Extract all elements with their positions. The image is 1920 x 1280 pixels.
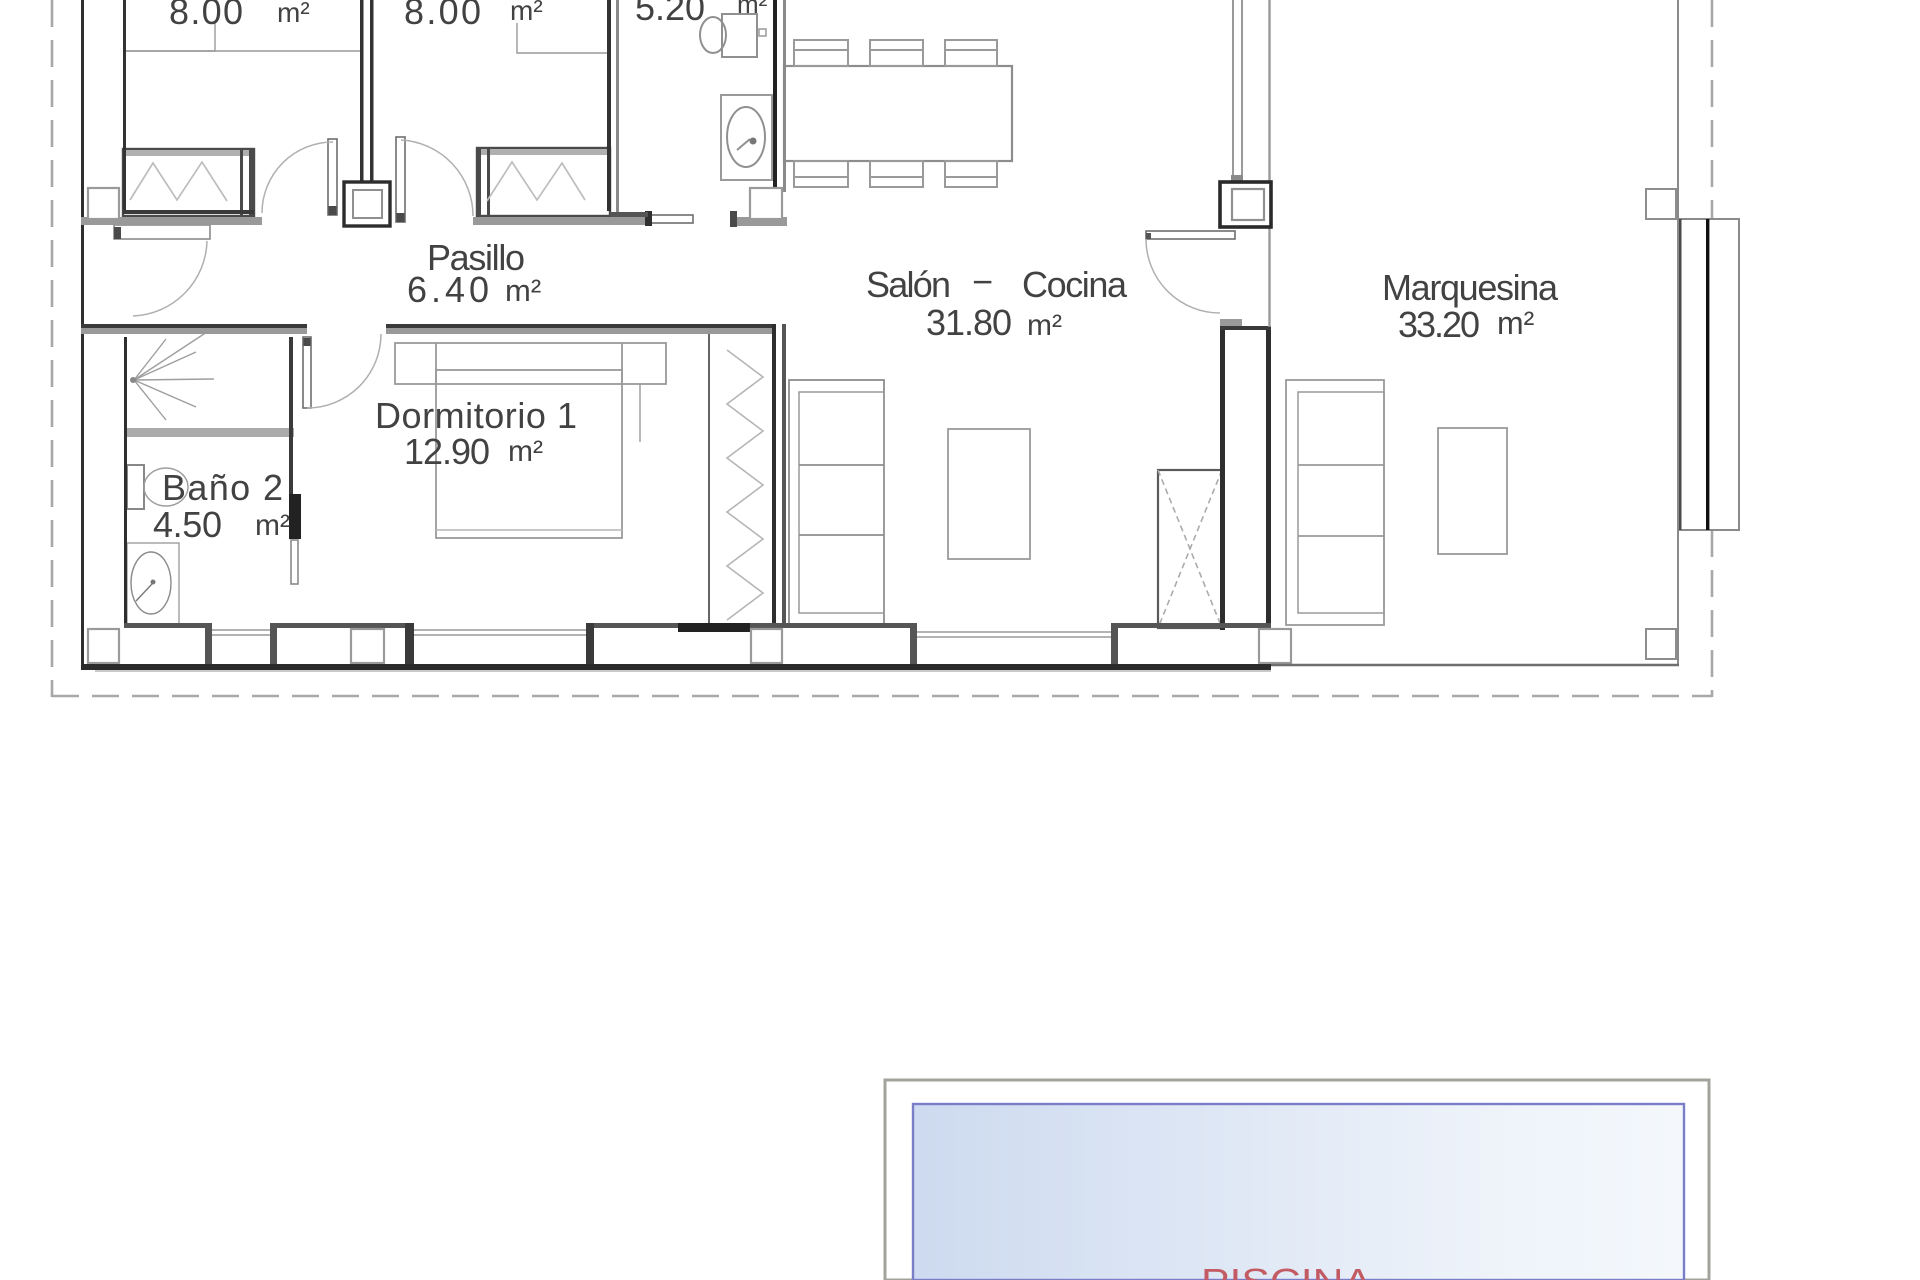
svg-text:m²: m² bbox=[737, 0, 768, 19]
svg-text:Salón: Salón bbox=[866, 264, 951, 305]
svg-text:8.00: 8.00 bbox=[404, 0, 481, 32]
svg-text:m²: m² bbox=[277, 0, 310, 28]
svg-text:m²: m² bbox=[1497, 305, 1535, 341]
svg-text:m²: m² bbox=[255, 509, 290, 542]
svg-text:m²: m² bbox=[505, 273, 541, 308]
svg-text:33.20: 33.20 bbox=[1398, 304, 1480, 345]
svg-text:Marquesina: Marquesina bbox=[1382, 267, 1559, 308]
svg-text:PISCINA: PISCINA bbox=[1201, 1261, 1372, 1280]
svg-text:4.50: 4.50 bbox=[153, 504, 222, 545]
svg-text:Dormitorio 1: Dormitorio 1 bbox=[375, 395, 577, 436]
svg-text:12.90: 12.90 bbox=[404, 431, 490, 472]
svg-text:m²: m² bbox=[1027, 309, 1062, 342]
svg-text:m²: m² bbox=[508, 435, 543, 468]
svg-text:m²: m² bbox=[510, 0, 543, 26]
svg-text:Cocina: Cocina bbox=[1022, 264, 1128, 305]
svg-text:5.20: 5.20 bbox=[635, 0, 705, 28]
svg-text:Baño 2: Baño 2 bbox=[162, 467, 283, 508]
svg-text:6.40: 6.40 bbox=[407, 269, 489, 310]
svg-text:8.00: 8.00 bbox=[169, 0, 243, 32]
svg-text:31.80: 31.80 bbox=[926, 302, 1012, 343]
svg-text:−: − bbox=[972, 261, 993, 302]
